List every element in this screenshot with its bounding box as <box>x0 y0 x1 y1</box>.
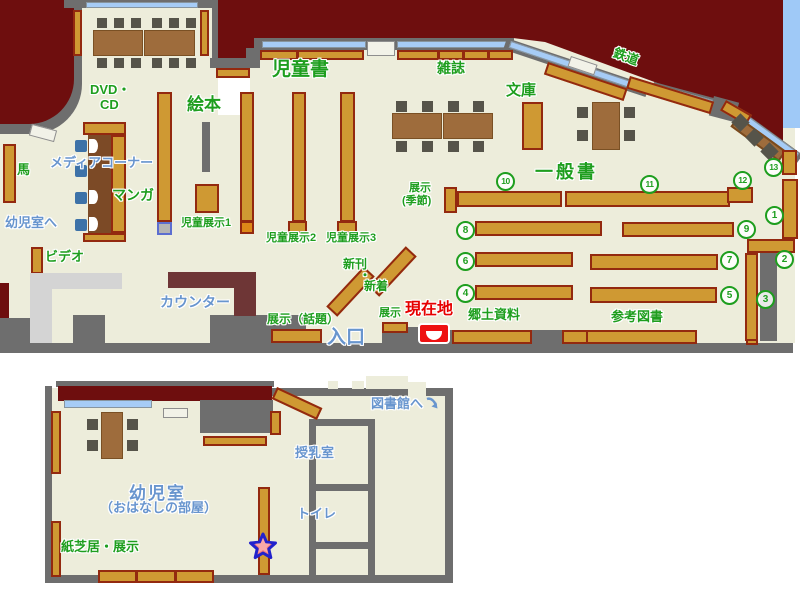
label-new-arrivals-2: 新着 <box>364 280 388 292</box>
wall-segment <box>309 542 375 549</box>
bookshelf <box>292 92 306 222</box>
shelf-number-8: 8 <box>456 221 475 240</box>
shelf-number-7: 7 <box>720 251 739 270</box>
chair <box>75 192 87 204</box>
bookshelf <box>51 521 61 577</box>
doorway <box>352 381 364 389</box>
service-counter <box>234 288 256 316</box>
shelf-number-3: 3 <box>756 290 775 309</box>
label-kamishibai-display: 紙芝居・展示 <box>61 540 139 553</box>
label-media-corner: メディアコーナー <box>50 156 153 169</box>
chair <box>577 107 588 118</box>
shelf-number-4: 4 <box>456 284 475 303</box>
chair <box>75 219 87 231</box>
bookshelf <box>463 50 489 60</box>
chair <box>127 419 138 430</box>
bookshelf <box>397 50 439 60</box>
chair <box>97 18 107 28</box>
table <box>592 102 620 150</box>
search-terminal <box>157 222 172 235</box>
star-marker <box>248 531 278 561</box>
work-area <box>30 273 122 289</box>
wall-segment <box>246 48 260 68</box>
chair <box>473 101 484 112</box>
table <box>443 113 493 139</box>
chair <box>396 101 407 112</box>
table <box>93 30 143 56</box>
bookshelf <box>586 330 697 344</box>
chair <box>131 58 141 68</box>
wall-segment <box>0 343 793 353</box>
wall-segment <box>309 419 316 575</box>
wall-segment <box>200 400 273 433</box>
chair <box>169 18 179 28</box>
chair <box>396 141 407 152</box>
service-counter <box>168 272 256 288</box>
bookshelf <box>111 135 126 233</box>
bookshelf <box>200 10 209 56</box>
wall-segment <box>368 419 375 575</box>
window <box>64 400 152 408</box>
bookshelf <box>83 233 126 242</box>
chair <box>131 18 141 28</box>
shelf-number-13: 13 <box>764 158 783 177</box>
label-general-books: 一般書 <box>535 163 598 181</box>
chair <box>87 419 98 430</box>
bookshelf <box>622 222 734 237</box>
bookshelf <box>270 411 281 435</box>
label-reference-books: 参考図書 <box>611 310 663 323</box>
label-children-display1: 児童展示1 <box>181 218 231 229</box>
bookshelf <box>782 150 797 175</box>
media-seat <box>89 190 98 204</box>
window <box>262 41 366 48</box>
wall-segment <box>309 484 375 491</box>
label-dvd: DVD・ <box>90 83 130 96</box>
label-current-location: 現在地 <box>405 302 453 318</box>
label-display: 展示 <box>379 308 401 319</box>
shelf-number-6: 6 <box>456 252 475 271</box>
label-display-seasonal-1: 展示 <box>409 183 431 194</box>
bookshelf <box>475 285 573 300</box>
shelf-number-12: 12 <box>733 171 752 190</box>
label-children-books: 児童書 <box>272 60 329 79</box>
shelf-number-5: 5 <box>720 286 739 305</box>
label-display-seasonal-2: (季節) <box>402 196 431 207</box>
chair <box>152 18 162 28</box>
chair <box>624 130 635 141</box>
media-seat <box>89 217 98 231</box>
label-manga: マンガ <box>112 188 154 202</box>
bookshelf <box>73 10 82 56</box>
doorway <box>328 381 338 389</box>
label-cd: CD <box>100 98 119 111</box>
shelf-number-11: 11 <box>640 175 659 194</box>
chair <box>186 18 196 28</box>
shelf-number-10: 10 <box>496 172 515 191</box>
display-shelf <box>271 329 322 343</box>
bookshelf <box>203 436 267 446</box>
bookshelf <box>488 50 513 60</box>
chair <box>127 440 138 451</box>
bookshelf <box>3 144 16 203</box>
bookshelf <box>782 179 798 239</box>
bookshelf <box>562 330 588 344</box>
wall-segment <box>0 318 30 343</box>
label-counter: カウンター <box>160 295 230 309</box>
label-children-display2: 児童展示2 <box>266 233 316 244</box>
chair <box>114 58 124 68</box>
door <box>163 408 188 418</box>
window <box>86 2 198 8</box>
table <box>144 30 195 56</box>
chair <box>87 440 98 451</box>
bookshelf <box>590 254 718 270</box>
bookshelf <box>240 92 254 222</box>
label-entrance: 入口 <box>327 328 365 347</box>
library-floor-map: 児童書 雑誌 文庫 鉄道 絵本 DVD・ CD メディアコーナー マンガ 馬 幼… <box>0 0 800 590</box>
outside-sky <box>783 0 800 128</box>
pillar <box>202 122 210 172</box>
bookshelf <box>31 247 43 274</box>
chair <box>473 141 484 152</box>
chair <box>422 141 433 152</box>
bookshelf <box>175 570 214 583</box>
shelf-number-1: 1 <box>765 206 784 225</box>
display-shelf <box>240 221 254 234</box>
label-horse: 馬 <box>17 163 30 176</box>
media-seat <box>89 139 98 153</box>
bookshelf <box>98 570 137 583</box>
chair <box>114 18 124 28</box>
label-children-display3: 児童展示3 <box>326 233 376 244</box>
chair <box>448 141 459 152</box>
bookshelf <box>216 68 250 78</box>
window <box>397 41 512 48</box>
bookshelf <box>51 411 61 474</box>
bookshelf <box>457 191 562 207</box>
wall-segment <box>445 396 453 583</box>
label-bunko: 文庫 <box>506 83 536 98</box>
bookshelf <box>452 330 532 344</box>
label-local-materials: 郷土資料 <box>468 308 520 321</box>
label-display-topical: 展示（話題） <box>267 313 339 325</box>
outside-area <box>58 386 272 401</box>
arrow-icon <box>425 396 439 410</box>
bookshelf <box>340 92 355 222</box>
wall-segment <box>73 315 105 343</box>
door <box>367 41 395 56</box>
label-magazines: 雑誌 <box>437 61 465 75</box>
label-to-library: 図書館へ <box>371 397 423 410</box>
vestibule <box>366 376 408 389</box>
table <box>392 113 442 139</box>
chair <box>186 58 196 68</box>
chair <box>577 130 588 141</box>
label-toilet: トイレ <box>297 507 336 520</box>
display-shelf <box>195 184 219 213</box>
chair <box>624 107 635 118</box>
doorway <box>408 382 426 396</box>
bookshelf <box>475 221 602 236</box>
wall-segment <box>309 419 375 426</box>
chair <box>75 140 87 152</box>
outside-area <box>0 0 74 124</box>
display-shelf <box>382 322 408 333</box>
chair <box>169 58 179 68</box>
wall-segment <box>426 388 453 396</box>
label-storytelling-room: （おはなしの部屋） <box>100 501 217 514</box>
work-area <box>30 288 52 343</box>
chair <box>422 101 433 112</box>
shelf-number-2: 2 <box>775 250 794 269</box>
display-shelf <box>444 187 457 213</box>
label-to-infant-room: 幼児室へ <box>5 216 57 229</box>
label-nursing-room: 授乳室 <box>295 446 334 459</box>
bookshelf <box>590 287 717 303</box>
shelf-number-9: 9 <box>737 220 756 239</box>
chair <box>152 58 162 68</box>
bookshelf <box>83 122 126 135</box>
label-picture-books: 絵本 <box>187 96 221 113</box>
chair <box>97 58 107 68</box>
bookshelf <box>157 92 172 222</box>
bookshelf <box>522 102 543 150</box>
bookshelf <box>136 570 176 583</box>
bookshelf <box>438 50 464 60</box>
chair <box>448 101 459 112</box>
bookshelf <box>475 252 573 267</box>
label-video: ビデオ <box>45 250 84 263</box>
table <box>101 412 123 459</box>
